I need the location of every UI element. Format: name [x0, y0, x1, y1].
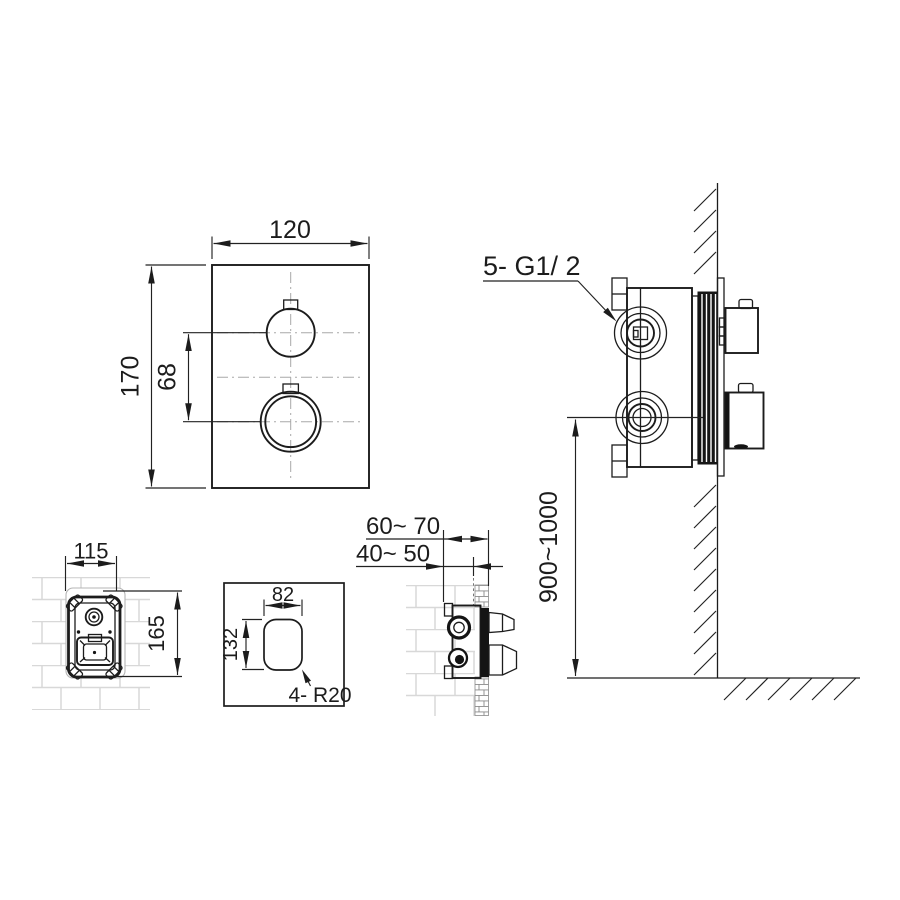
dim-opening-width: 82: [272, 584, 294, 606]
wall-hatching-below: [694, 485, 716, 675]
cutout-shape: [264, 620, 302, 671]
thread-label: 5- G1/ 2: [483, 251, 581, 281]
lower-port-plug: [455, 655, 464, 664]
wall-installation-view: 5- G1/ 2 900~1000: [483, 183, 860, 700]
dim-box-width: 115: [73, 539, 108, 564]
valve-body-side: [612, 278, 764, 477]
thread-callout: 5- G1/ 2: [483, 251, 617, 322]
leader-line: [578, 281, 610, 315]
finish-layer-top: [475, 585, 489, 607]
floor-hatching: [724, 678, 856, 700]
dim-depth-finished: 60~ 70: [366, 513, 440, 540]
finish-layer-bottom: [475, 677, 489, 716]
screw-right: [108, 630, 111, 633]
lower-stem: [489, 645, 517, 675]
dim-handle-spacing: 68: [154, 363, 182, 391]
dim-opening-height: 132: [220, 628, 242, 661]
volume-knob-side: [726, 384, 764, 449]
dim-box-height: 165: [144, 615, 169, 652]
wall-hatching-above: [694, 189, 716, 274]
front-view: 68 120 170: [117, 216, 370, 488]
upper-stem: [489, 613, 514, 633]
wall-flange: [718, 278, 725, 476]
rough-in-box-front-view: 115 165: [32, 539, 182, 711]
threaded-sleeve: [698, 292, 718, 464]
dim-mounting-height: 900~1000: [535, 491, 563, 603]
dim-plate-height: 170: [117, 356, 145, 398]
temperature-knob-side: [720, 300, 759, 354]
dim-plate-width: 120: [269, 216, 311, 244]
screw-left: [77, 630, 80, 633]
upper-port-side: [449, 617, 470, 638]
dim-depth-rough: 40~ 50: [356, 541, 430, 568]
rough-in-box-side-view: 60~ 70 40~ 50: [356, 513, 517, 716]
face-plate: [481, 608, 490, 677]
installation-drawing: 68 120 170: [0, 0, 900, 900]
dim-arrowhead: [474, 563, 492, 570]
technical-drawing-page: 68 120 170: [0, 0, 900, 900]
mounting-height-dimension: 900~1000: [535, 418, 703, 677]
dim-corner-radius: 4- R20: [289, 684, 352, 707]
wall-opening-template: 82 132 4- R20: [220, 583, 352, 707]
